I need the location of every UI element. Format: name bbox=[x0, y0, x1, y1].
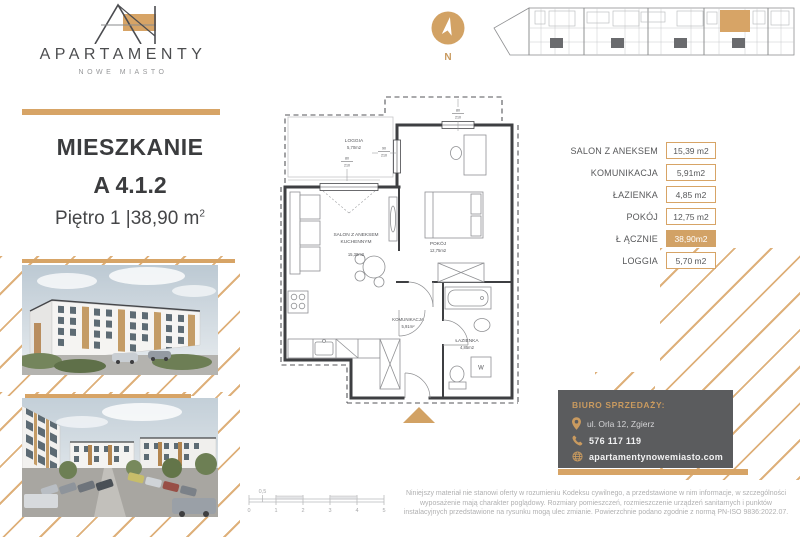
site-plan-highlighted-unit bbox=[720, 10, 750, 32]
sales-office-website: apartamentynowemiasto.com bbox=[589, 452, 723, 462]
compass-label: N bbox=[444, 52, 451, 63]
dim-loggia-door-h: 210 bbox=[381, 154, 387, 158]
building-photo-2 bbox=[22, 398, 218, 517]
stripes-decor-4 bbox=[595, 372, 655, 392]
brand-name: APARTAMENTY bbox=[20, 46, 226, 64]
brand-subtitle: NOWE MIASTO bbox=[20, 69, 226, 76]
sales-office-heading: BIURO SPRZEDAŻY: bbox=[572, 400, 733, 410]
scale-tick-0: 0 bbox=[247, 508, 250, 514]
sales-office-address-row: ul. Orla 12, Zgierz bbox=[572, 417, 733, 430]
entrance-marker-triangle bbox=[403, 407, 435, 423]
area-row-label: Ł ĄCZNIE bbox=[545, 234, 658, 244]
area-row-value: 5,91m2 bbox=[666, 164, 716, 181]
room-label-komunikacja: KOMUNIKACJA bbox=[392, 317, 424, 322]
globe-icon bbox=[572, 451, 583, 462]
site-key-plan bbox=[483, 4, 797, 60]
sales-office-address: ul. Orla 12, Zgierz bbox=[587, 419, 655, 429]
sales-office-box: BIURO SPRZEDAŻY: ul. Orla 12, Zgierz 576… bbox=[558, 390, 733, 468]
dim-loggia-door-w: 90 bbox=[382, 147, 386, 151]
scale-half-label: 0,5 bbox=[259, 489, 267, 495]
sales-box-gold-bar bbox=[558, 469, 748, 475]
room-label-salon-1: SALON Z ANEKSEM bbox=[333, 232, 378, 238]
disclaimer-line: instalacyjnych przedstawione na rysunku … bbox=[400, 508, 792, 518]
area-row-label: LOGGIA bbox=[545, 256, 658, 266]
area-row-value: 38,90m2 bbox=[666, 230, 716, 247]
photo1-gold-bar bbox=[22, 259, 235, 263]
unit-number: A 4.1.2 bbox=[28, 172, 232, 199]
dim-balcony-window-h: 210 bbox=[344, 164, 350, 168]
scale-tick-3: 3 bbox=[328, 508, 331, 514]
room-area-komunikacja: 5,91m² bbox=[401, 324, 415, 329]
room-label-pokoj: POKÓJ bbox=[430, 240, 447, 247]
area-table-row: POKÓJ 12,75 m2 bbox=[545, 208, 718, 225]
compass-north-icon: N bbox=[429, 8, 467, 64]
apartment-brochure-page: APARTAMENTY NOWE MIASTO MIESZKANIE A 4.1… bbox=[0, 0, 800, 537]
map-pin-icon bbox=[572, 417, 581, 430]
listing-type-label: MIESZKANIE bbox=[28, 134, 232, 161]
phone-icon bbox=[572, 435, 583, 446]
room-label-lazienka: ŁAZIENKA bbox=[455, 338, 479, 344]
area-table-row: SALON Z ANEKSEM 15,39 m2 bbox=[545, 142, 718, 159]
area-table-row-total: Ł ĄCZNIE 38,90m2 bbox=[545, 230, 718, 247]
scale-tick-4: 4 bbox=[355, 508, 358, 514]
scale-bar: 0,5 0 1 2 3 4 5 bbox=[243, 486, 388, 514]
dim-top-window-h: 210 bbox=[455, 116, 461, 120]
area-table-row: LOGGIA 5,70 m2 bbox=[545, 252, 718, 269]
room-label-salon-2: KUCHENNYM bbox=[341, 239, 372, 245]
room-area-salon: 15,39m2 bbox=[348, 252, 365, 257]
floor-plan: LOGGIA 5,70m2 SALON Z ANEKSEM KUCHENNYM … bbox=[268, 85, 525, 430]
area-table-row: ŁAZIENKA 4,85 m2 bbox=[545, 186, 718, 203]
dim-top-window-w: 80 bbox=[456, 109, 460, 113]
disclaimer-line: Niniejszy materiał nie stanowi oferty w … bbox=[400, 489, 792, 499]
sales-office-phone: 576 117 119 bbox=[589, 436, 641, 446]
area-row-label: SALON Z ANEKSEM bbox=[545, 146, 658, 156]
scale-tick-1: 1 bbox=[274, 508, 277, 514]
disclaimer-line: wyposażenie mają charakter poglądowy. Ro… bbox=[400, 499, 792, 509]
room-area-loggia: 5,70m2 bbox=[347, 145, 362, 150]
legal-disclaimer: Niniejszy materiał nie stanowi oferty w … bbox=[400, 489, 792, 518]
sales-office-website-row: apartamentynowemiasto.com bbox=[572, 451, 733, 462]
gold-divider bbox=[22, 109, 220, 115]
room-area-lazienka: 4,85m2 bbox=[460, 345, 475, 350]
area-row-label: ŁAZIENKA bbox=[545, 190, 658, 200]
area-row-value: 4,85 m2 bbox=[666, 186, 716, 203]
dim-balcony-window-w: 80 bbox=[345, 157, 349, 161]
floor-and-area: Piętro 1 |38,90 m2 bbox=[28, 208, 232, 230]
scale-tick-5: 5 bbox=[382, 508, 385, 514]
area-row-label: POKÓJ bbox=[545, 212, 658, 222]
area-row-value: 15,39 m2 bbox=[666, 142, 716, 159]
area-table-row: KOMUNIKACJA 5,91m2 bbox=[545, 164, 718, 181]
area-row-value: 12,75 m2 bbox=[666, 208, 716, 225]
brand-logo-mark bbox=[83, 2, 161, 44]
area-row-value: 5,70 m2 bbox=[666, 252, 716, 269]
area-superscript: 2 bbox=[199, 209, 205, 220]
room-area-pokoj: 12,75m2 bbox=[430, 248, 447, 253]
scale-tick-2: 2 bbox=[301, 508, 304, 514]
room-label-loggia: LOGGIA bbox=[345, 138, 364, 144]
sales-office-phone-row: 576 117 119 bbox=[572, 435, 733, 446]
building-photo-1 bbox=[22, 265, 218, 375]
washer-label: W bbox=[478, 366, 484, 372]
floor-line: Piętro 1 |38,90 m bbox=[55, 208, 199, 229]
area-row-label: KOMUNIKACJA bbox=[545, 168, 658, 178]
